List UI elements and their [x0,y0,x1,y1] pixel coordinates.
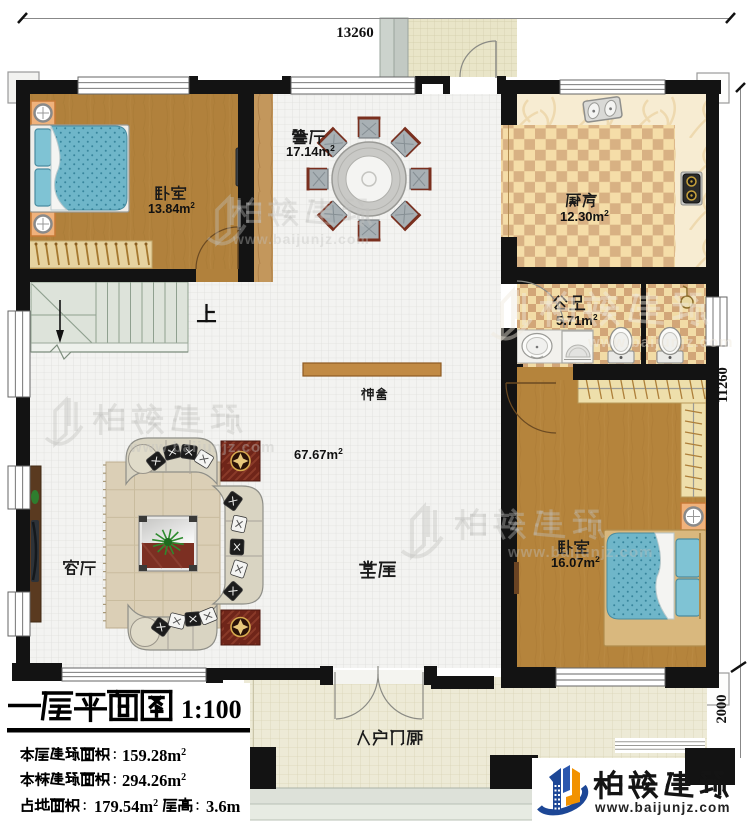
svg-text:2000: 2000 [714,695,730,724]
svg-text:1:100: 1:100 [181,695,242,724]
svg-text:www.baijunjz.com: www.baijunjz.com [594,800,731,815]
svg-text:13.84m2: 13.84m2 [148,201,195,216]
svg-text:11260: 11260 [715,367,731,402]
svg-text:www.baijunjz.com: www.baijunjz.com [507,544,653,561]
svg-text:67.67m2: 67.67m2 [294,446,343,462]
svg-text:www.baijunjz.com: www.baijunjz.com [232,231,370,247]
svg-text:17.14m2: 17.14m2 [286,143,335,159]
svg-text:179.54m2: 179.54m2 [94,797,158,816]
svg-text:294.26m2: 294.26m2 [122,771,186,790]
svg-text:www.baijunjz.com: www.baijunjz.com [587,334,733,351]
svg-text:3.6m: 3.6m [206,797,241,816]
svg-text:www.baijunjz.com: www.baijunjz.com [129,439,275,456]
svg-text:13260: 13260 [336,25,374,41]
svg-text:12.30m2: 12.30m2 [560,208,609,224]
svg-text:159.28m2: 159.28m2 [122,746,186,765]
